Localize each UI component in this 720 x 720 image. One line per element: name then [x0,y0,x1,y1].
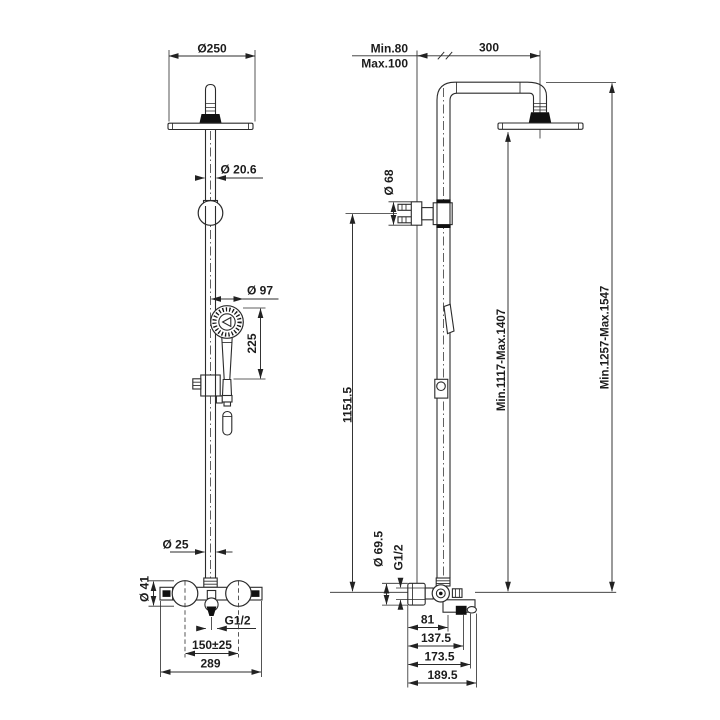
label-mixer-width: 289 [200,657,220,671]
technical-drawing-page: Ø250 Ø 20.6 Ø 97 225 Ø 25 Ø 41 [0,0,720,720]
label-wall-distance-min: Min.80 [371,42,409,56]
label-outlet-thread-side: G1/2 [392,544,406,570]
dim-wall-distance-and-projection: Min.80 Max.100 300 [352,41,540,71]
dim-rail-height: 1151.5 [340,214,397,592]
diverter-stem [207,591,215,599]
label-handshower-length: 225 [245,333,259,353]
shower-column-drawing: Ø250 Ø 20.6 Ø 97 225 Ø 25 Ø 41 [0,0,720,720]
label-arm-projection: 300 [479,41,499,55]
overhead-disc-side [498,123,583,129]
valve-wall-plate [408,583,425,605]
dim-overall-height-range: Min.1257-Max.1547 [546,82,616,591]
label-wall-distance-max: Max.100 [361,57,408,71]
label-inlet-spacing: 150±25 [192,638,232,652]
slider-bracket-front [193,375,222,403]
slider-knob-front [193,379,201,389]
label-overall-height-range: Min.1257-Max.1547 [600,286,612,390]
dim-head-height-range: Min.1117-Max.1407 [496,132,508,591]
label-head-pipe-diameter: Ø 20.6 [221,163,257,177]
shower-arm-side [437,82,583,226]
dim-riser-diameter: Ø 25 [163,538,233,553]
slider-bracket-side [435,379,448,398]
label-bracket-diameter: Ø 68 [382,169,396,195]
label-escutcheon-diameter: Ø 69.5 [372,531,386,567]
riser-collar-front [204,578,217,587]
bracket-flange [411,202,422,225]
label-rail-height: 1151.5 [340,387,354,423]
label-outlet-thread-front: G1/2 [225,614,251,628]
label-head-diameter: Ø250 [197,42,227,56]
dim-outlet-thread-front: G1/2 [199,614,257,631]
dim-handshower-diameter: Ø 97 [211,284,278,300]
ball-joint-front [198,201,223,226]
side-view: Min.80 Max.100 300 Ø 68 1151.5 Min.1117-… [330,41,616,688]
label-depth-137: 137.5 [421,631,451,645]
label-head-height-range: Min.1117-Max.1407 [496,309,508,411]
label-depth-189: 189.5 [427,668,457,682]
wall-bracket-side [398,199,452,228]
label-handle-diameter: Ø 41 [138,576,152,602]
overhead-disc-front [168,123,253,129]
bracket-clamp [433,203,452,225]
label-riser-diameter: Ø 25 [163,538,189,552]
front-view: Ø250 Ø 20.6 Ø 97 225 Ø 25 Ø 41 [138,42,279,678]
dim-head-diameter: Ø250 [169,42,255,122]
label-handshower-diameter: Ø 97 [247,284,273,298]
label-depth-173: 173.5 [424,650,454,664]
slider-knob-side [437,382,446,391]
dim-depths: 81 137.5 173.5 189.5 [408,605,477,687]
label-depth-81: 81 [421,613,435,627]
hose-end [223,412,232,436]
hand-shower-side [444,304,454,333]
